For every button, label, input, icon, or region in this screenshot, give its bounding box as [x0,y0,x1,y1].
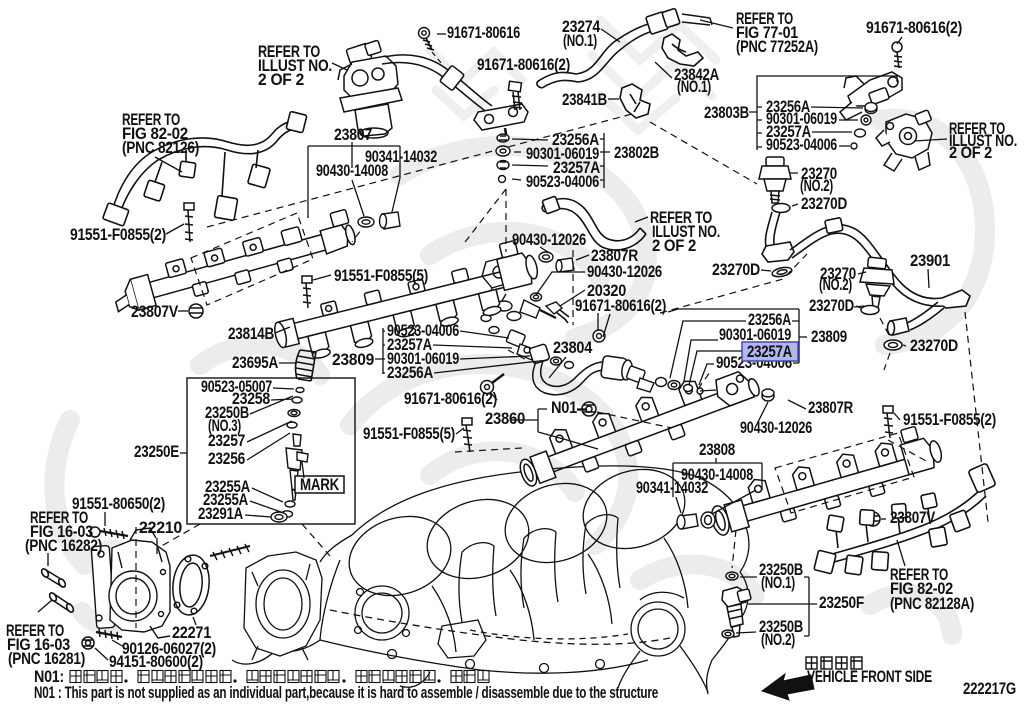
svg-text:(PNC 16281): (PNC 16281) [8,649,85,668]
svg-text:23809: 23809 [332,350,374,369]
svg-text:91671-80616(2): 91671-80616(2) [477,55,570,74]
svg-text:23809: 23809 [811,327,847,346]
svg-text:91551-F0855(2): 91551-F0855(2) [903,410,996,429]
svg-text:23814B: 23814B [228,324,274,343]
svg-text:23807R: 23807R [808,398,853,417]
svg-text:(NO.1): (NO.1) [761,573,795,592]
svg-text:(NO.2): (NO.2) [761,630,795,649]
svg-text:91671-80616(2): 91671-80616(2) [575,296,666,315]
svg-text:(PNC 16282): (PNC 16282) [25,536,102,555]
svg-text:MARK: MARK [300,475,340,494]
svg-text:(PNC 82128A): (PNC 82128A) [890,594,974,613]
svg-text:23270D: 23270D [801,194,847,213]
svg-text:23803B: 23803B [704,103,749,122]
svg-text:23257: 23257 [208,431,245,450]
svg-text:90430-14008: 90430-14008 [316,161,388,180]
svg-text:23270D: 23270D [910,336,958,355]
svg-text:23256A: 23256A [387,363,433,382]
svg-text:(NO.2): (NO.2) [819,275,852,294]
svg-text:N01 : This part is not supplie: N01 : This part is not supplied as an in… [34,683,658,702]
svg-text:94151-80600(2): 94151-80600(2) [109,652,203,671]
svg-text:91551-F0855(5): 91551-F0855(5) [363,424,455,443]
svg-text:23804: 23804 [553,338,593,357]
svg-text:90430-12026: 90430-12026 [740,418,812,437]
svg-text:2 OF 2: 2 OF 2 [949,143,992,162]
svg-text:23270D: 23270D [809,296,854,315]
svg-text:91551-F0855(2): 91551-F0855(2) [70,225,166,244]
svg-text:2 OF 2: 2 OF 2 [652,236,696,255]
svg-text:91671-80616(2): 91671-80616(2) [404,389,497,408]
svg-text:23256: 23256 [208,449,245,468]
svg-text:90523-04006: 90523-04006 [766,135,837,154]
svg-text:90430-12026: 90430-12026 [587,262,662,281]
svg-text:23807: 23807 [334,125,372,144]
svg-text:23807V: 23807V [890,508,936,527]
svg-text:91671-80616(2): 91671-80616(2) [866,18,962,37]
svg-text:90341-14032: 90341-14032 [636,478,708,497]
svg-text:90430-12026: 90430-12026 [512,230,586,249]
svg-text:23250F: 23250F [819,593,864,612]
svg-text:(NO.1): (NO.1) [677,77,711,96]
svg-text:23901: 23901 [910,251,950,270]
svg-text:23808: 23808 [699,440,735,459]
svg-text:23807V: 23807V [131,302,179,321]
svg-text:23802B: 23802B [614,143,659,162]
svg-text:90523-04006: 90523-04006 [526,172,599,191]
svg-text:(NO.2): (NO.2) [800,176,833,195]
svg-text:N01: N01 [551,398,577,417]
svg-text:91551-F0855(5): 91551-F0855(5) [334,266,428,285]
svg-text:23860: 23860 [485,409,525,428]
svg-text:23841B: 23841B [562,90,607,109]
svg-text:23250E: 23250E [134,442,179,461]
svg-text:23695A: 23695A [232,353,278,372]
svg-text:VEHICLE FRONT SIDE: VEHICLE FRONT SIDE [807,667,932,686]
svg-text:(NO.1): (NO.1) [563,31,597,50]
svg-text:(PNC 77252A): (PNC 77252A) [736,37,818,56]
svg-text:22210: 22210 [139,518,182,537]
svg-text:23291A: 23291A [198,504,243,523]
svg-text:23257A: 23257A [747,342,792,361]
svg-text:23270D: 23270D [712,260,760,279]
svg-text:222217G: 222217G [963,679,1016,698]
svg-text:(PNC 82126): (PNC 82126) [122,138,199,157]
svg-text:91671-80616: 91671-80616 [447,23,520,42]
svg-text:2 OF 2: 2 OF 2 [258,70,304,89]
